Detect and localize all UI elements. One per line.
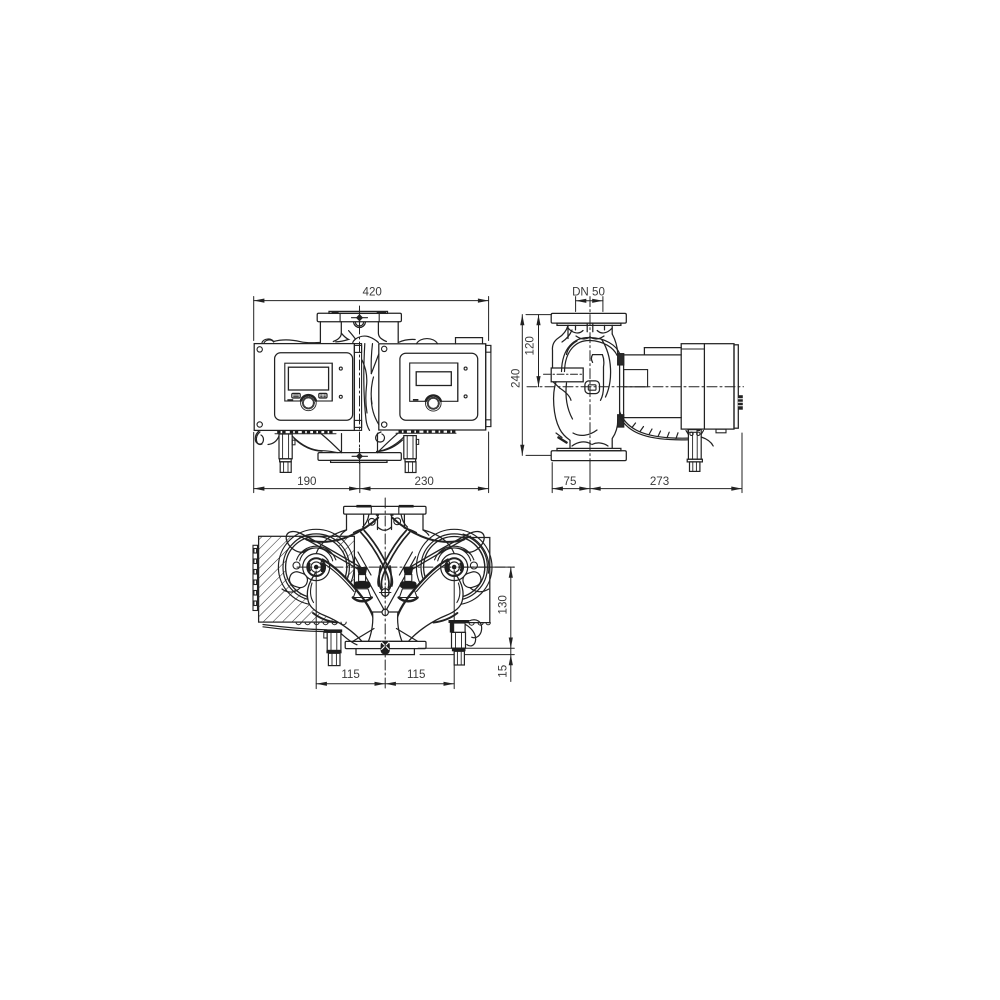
svg-text:273: 273 <box>650 475 669 488</box>
svg-text:120: 120 <box>524 336 537 355</box>
svg-text:420: 420 <box>363 286 382 299</box>
svg-text:115: 115 <box>341 668 359 681</box>
svg-text:190: 190 <box>297 475 316 488</box>
svg-text:75: 75 <box>564 475 577 488</box>
svg-text:DN 50: DN 50 <box>572 286 605 299</box>
svg-text:130: 130 <box>496 595 509 614</box>
svg-text:240: 240 <box>509 369 522 388</box>
svg-text:230: 230 <box>415 475 434 488</box>
svg-text:115: 115 <box>407 668 425 681</box>
svg-text:15: 15 <box>496 665 509 678</box>
